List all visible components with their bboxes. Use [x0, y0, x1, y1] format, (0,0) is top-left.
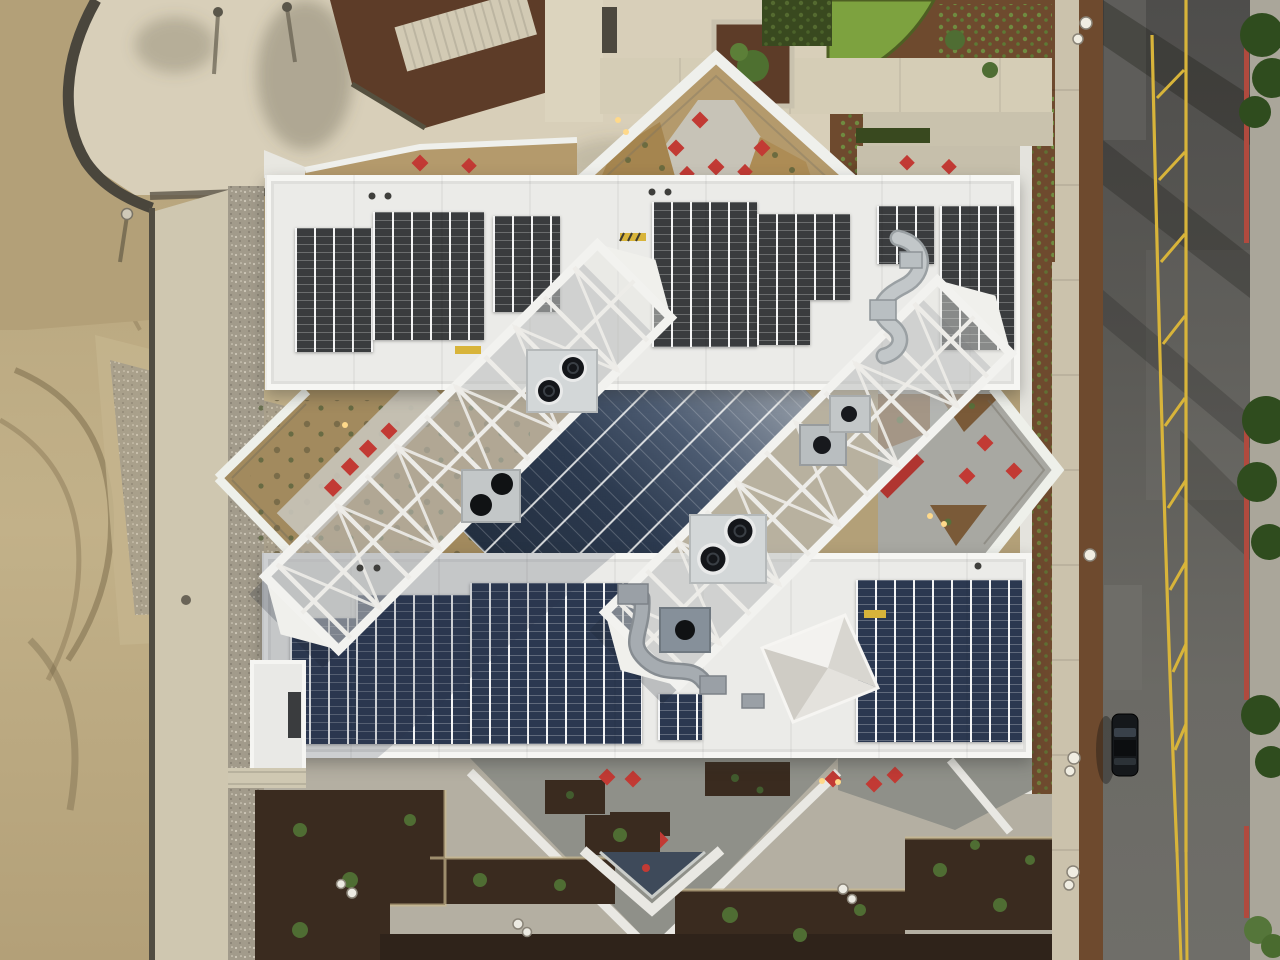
- west-annex-roof: [228, 662, 306, 788]
- overhead-structures-layer: [0, 0, 1280, 960]
- pyramid-skylight: [762, 615, 878, 722]
- aerial-photo-canvas: [0, 0, 1280, 960]
- south-atrium-tip: [583, 850, 721, 910]
